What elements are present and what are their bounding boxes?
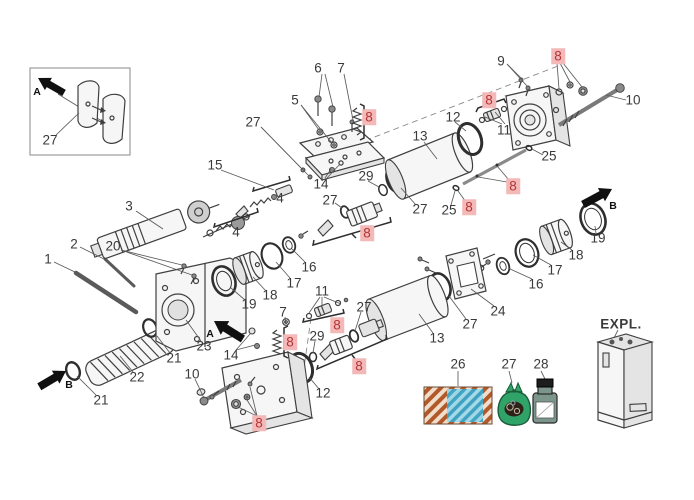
spring-set-7-bottom [273,319,289,357]
legend-seal-kit-bag-27 [498,383,530,425]
armature-assembly-3 [89,194,224,262]
bolt-10-top [559,84,624,126]
legend-oil-bottle-28 [533,379,557,423]
manifold-block-bottom [222,352,312,434]
exploded-parts-diagram: 2767582798108111213258258291427278154432… [0,0,694,500]
ring-29-bottom [310,353,317,362]
end-block-top-right [506,78,624,150]
piston-stack-right [478,200,610,276]
piston-18-right [537,218,575,256]
view-arrow-b-left-icon [37,371,66,391]
diagram-canvas [0,0,694,500]
plate-assembly-top [300,96,384,180]
cylinder-13-top [381,130,476,201]
bolts-6 [315,96,335,126]
clamp-half-left [78,81,99,127]
expl-label: EXPL. [600,317,642,332]
clip-25-lower [452,185,459,192]
legend-abrasive-sheet-26 [424,387,492,424]
inset-detail-box [30,68,130,155]
valve-cartridge-lower [310,317,385,362]
valve-parts-15 [236,184,293,218]
pin-2 [105,259,134,286]
expl-assembled-unit [598,334,652,428]
